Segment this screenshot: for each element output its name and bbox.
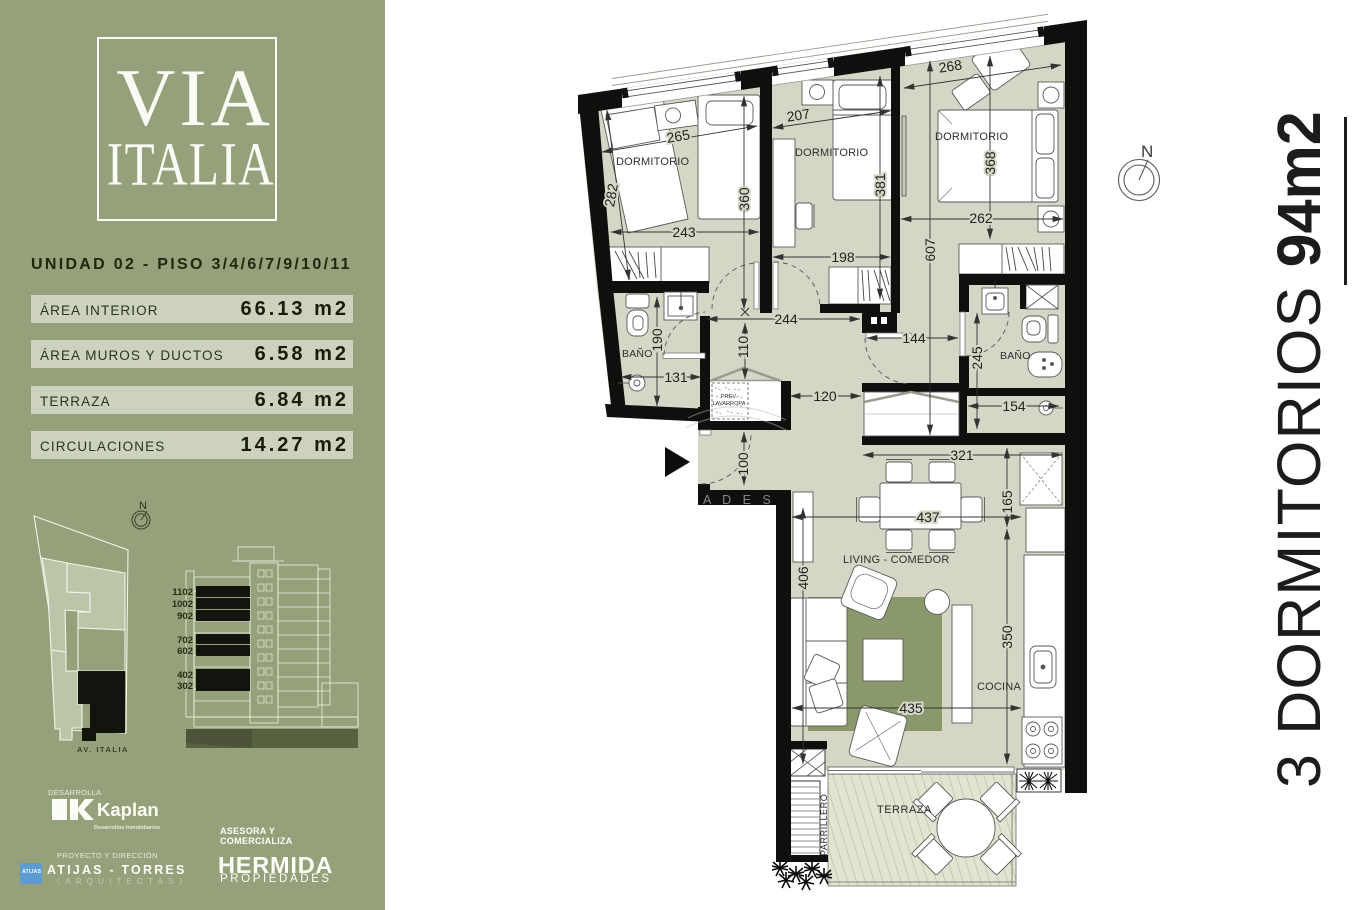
svg-text:DORMITORIO: DORMITORIO	[795, 147, 869, 159]
svg-text:AV. ITALIA: AV. ITALIA	[77, 745, 129, 754]
svg-text:607: 607	[922, 238, 938, 262]
svg-text:368: 368	[982, 151, 998, 175]
svg-text:321: 321	[950, 447, 974, 463]
svg-text:435: 435	[899, 700, 923, 716]
svg-text:Kaplan: Kaplan	[97, 799, 159, 820]
svg-text:902: 902	[177, 611, 193, 622]
svg-text:154: 154	[1002, 398, 1026, 414]
svg-text:165: 165	[999, 490, 1015, 514]
svg-text:602: 602	[177, 646, 193, 657]
svg-text:437: 437	[916, 509, 940, 525]
svg-text:245: 245	[969, 346, 985, 370]
svg-text:360: 360	[736, 187, 752, 211]
svg-text:BAÑO: BAÑO	[1000, 349, 1031, 362]
svg-text:131: 131	[664, 369, 688, 385]
svg-text:144: 144	[902, 330, 926, 346]
svg-text:TERRAZA: TERRAZA	[877, 804, 932, 816]
svg-text:207: 207	[786, 105, 812, 124]
svg-text:N: N	[1141, 142, 1153, 161]
svg-text:243: 243	[672, 224, 696, 240]
svg-text:268: 268	[938, 56, 964, 75]
svg-text:COCINA: COCINA	[977, 681, 1021, 693]
svg-text:702: 702	[177, 635, 193, 646]
svg-text:A D E S: A D E S	[703, 493, 775, 507]
svg-text:350: 350	[999, 625, 1015, 649]
svg-text:DORMITORIO: DORMITORIO	[935, 131, 1009, 143]
svg-text:406: 406	[795, 566, 811, 590]
svg-text:402: 402	[177, 670, 193, 681]
svg-text:262: 262	[969, 210, 993, 226]
svg-text:120: 120	[813, 388, 837, 404]
svg-text:100: 100	[735, 452, 751, 476]
svg-text:381: 381	[872, 173, 888, 197]
svg-text:302: 302	[177, 681, 193, 692]
svg-text:1002: 1002	[172, 599, 193, 610]
svg-text:BAÑO: BAÑO	[622, 347, 653, 360]
svg-text:PARRILLERO: PARRILLERO	[819, 794, 829, 856]
svg-text:PREV.: PREV.	[721, 394, 738, 400]
svg-text:LAVARROPA: LAVARROPA	[713, 401, 746, 407]
svg-text:DORMITORIO: DORMITORIO	[616, 156, 690, 168]
svg-text:198: 198	[831, 249, 855, 265]
svg-text:1102: 1102	[172, 587, 193, 598]
svg-text:LIVING - COMEDOR: LIVING - COMEDOR	[843, 554, 950, 566]
svg-text:244: 244	[774, 311, 798, 327]
svg-text:110: 110	[735, 336, 751, 359]
